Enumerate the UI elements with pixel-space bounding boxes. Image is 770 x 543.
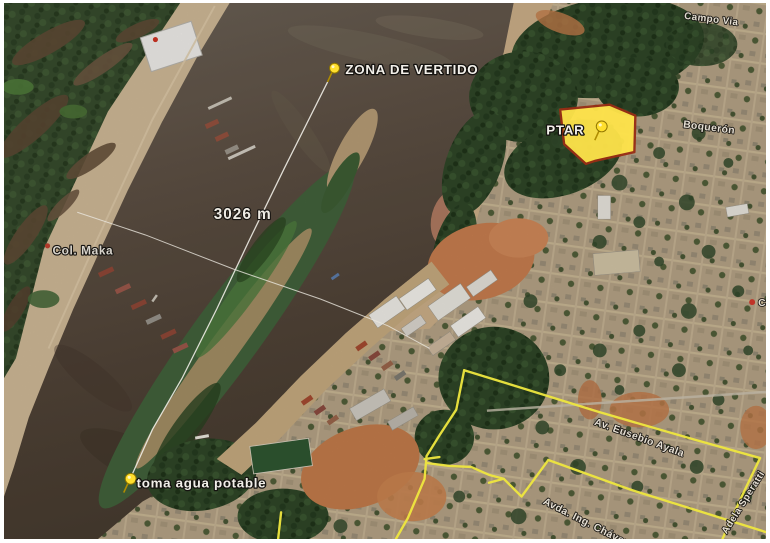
label-toma-agua-potable: toma agua potable xyxy=(137,476,267,491)
noise-overlay xyxy=(4,3,766,539)
screenshot-page: ZONA DE VERTIDO PTAR toma agua potable 3… xyxy=(0,0,770,543)
label-zona-de-vertido: ZONA DE VERTIDO xyxy=(345,62,478,77)
label-distance: 3026 m xyxy=(214,206,272,223)
label-col-maka: Col. Maka xyxy=(52,244,113,258)
label-edge-partial: Ca xyxy=(758,298,766,309)
terrain-layer xyxy=(4,3,766,539)
label-ptar: PTAR xyxy=(546,122,584,137)
satellite-map: ZONA DE VERTIDO PTAR toma agua potable 3… xyxy=(4,3,766,539)
map-frame: ZONA DE VERTIDO PTAR toma agua potable 3… xyxy=(4,3,766,539)
edge-place-dot[interactable] xyxy=(749,299,755,305)
col-maka-dot[interactable] xyxy=(45,243,50,248)
